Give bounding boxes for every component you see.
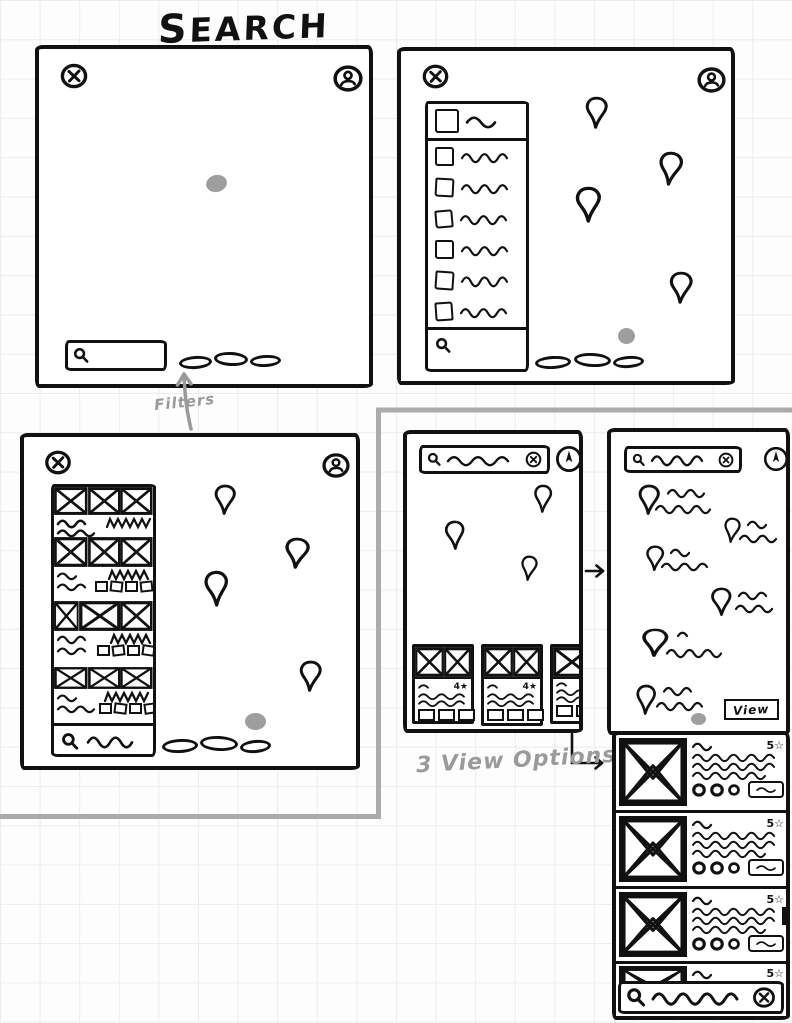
- profile-icon[interactable]: [696, 66, 727, 94]
- list-row[interactable]: 5☆: [616, 735, 786, 813]
- scribble-text: [756, 865, 776, 870]
- amenity-boxes: [95, 581, 153, 592]
- suggestion-row[interactable]: [428, 296, 526, 327]
- pin-label-scribble: [666, 648, 722, 657]
- image-placeholder-icon: [120, 601, 153, 631]
- search-input[interactable]: [624, 446, 742, 473]
- scribble-text: [57, 572, 83, 579]
- map-pin-icon[interactable]: [281, 536, 313, 571]
- result-text-row[interactable]: [54, 567, 153, 601]
- result-image-strip[interactable]: [54, 601, 153, 631]
- scribble-text: [460, 214, 510, 224]
- search-icon: [61, 732, 80, 751]
- pin-label-scribble: [747, 520, 769, 528]
- amenity-ring-icon: [692, 937, 706, 951]
- amenity-ring-icon: [710, 937, 724, 951]
- scribble-icons: [106, 518, 150, 528]
- search-icon: [73, 347, 90, 364]
- image-placeholder-icon: [120, 487, 153, 515]
- image-placeholder-icon: [54, 601, 79, 631]
- image-placeholder-icon: [79, 601, 121, 631]
- scribble-text: [57, 529, 97, 536]
- scribble-text: [57, 647, 93, 654]
- scribble-text: [756, 941, 776, 946]
- map-pin-icon[interactable]: [442, 519, 469, 552]
- results-panel: [51, 484, 156, 757]
- image-placeholder-icon: [619, 892, 687, 957]
- map-pin-icon[interactable]: [708, 586, 735, 618]
- search-icon: [427, 452, 442, 467]
- scribble-text: [461, 183, 515, 193]
- row-rating: 5☆: [766, 817, 784, 830]
- checkbox[interactable]: [435, 109, 459, 133]
- amenity-ring-icon: [692, 861, 706, 875]
- view-options-annotation: 3 View Options: [415, 743, 616, 778]
- search-input[interactable]: [65, 340, 167, 371]
- image-placeholder-icon: [120, 667, 153, 689]
- map-pin-icon[interactable]: [572, 185, 605, 225]
- image-placeholder-icon: [54, 667, 88, 689]
- amenity-ring-icon: [728, 862, 740, 874]
- scribble-text: [692, 916, 778, 924]
- image-placeholder-icon: [619, 816, 687, 882]
- checkbox[interactable]: [435, 147, 454, 166]
- pin-label-scribble: [739, 534, 781, 542]
- phone-card-view: 4★ 4★: [403, 430, 583, 733]
- phone-transition-arrow: [586, 566, 603, 577]
- scrollbar-thumb[interactable]: [782, 907, 786, 925]
- result-card[interactable]: 4★: [412, 644, 474, 724]
- filter-pill[interactable]: [250, 354, 282, 368]
- image-placeholder-icon: [120, 537, 153, 567]
- scribble-query: [87, 735, 139, 747]
- map-pin-icon[interactable]: [518, 554, 540, 582]
- scribble-action-button[interactable]: [748, 935, 784, 952]
- result-card[interactable]: [550, 644, 583, 724]
- result-image-strip[interactable]: [54, 667, 153, 689]
- result-image-strip[interactable]: [54, 487, 153, 515]
- search-input[interactable]: [618, 981, 784, 1014]
- scribble-text: [57, 635, 85, 643]
- map-pin-icon[interactable]: [634, 684, 658, 716]
- map-pin-icon[interactable]: [212, 484, 238, 516]
- filter-pill[interactable]: [214, 351, 249, 367]
- scribble-text: [461, 275, 511, 286]
- suggestion-row[interactable]: [428, 203, 526, 234]
- filter-pill[interactable]: [574, 352, 612, 368]
- scribble-text: [487, 693, 537, 699]
- amenity-boxes: [418, 709, 468, 721]
- profile-icon[interactable]: [332, 64, 364, 93]
- profile-icon[interactable]: [321, 452, 351, 479]
- scrollbar-thumb[interactable]: [786, 600, 790, 646]
- amenity-boxes: [556, 705, 583, 717]
- scribble-text: [418, 700, 468, 706]
- scribble-text: [692, 970, 718, 978]
- map-pin-icon[interactable]: [201, 569, 233, 609]
- scribble-rating: [108, 570, 150, 580]
- suggestion-row[interactable]: [428, 265, 526, 296]
- phone-list-view: 5☆ 5☆: [612, 731, 790, 1020]
- image-placeholder-icon: [88, 537, 121, 567]
- map-pin-icon[interactable]: [655, 150, 686, 188]
- suggestions-panel: [425, 101, 529, 372]
- filter-pill[interactable]: [162, 738, 199, 754]
- pin-label-scribble: [735, 604, 779, 612]
- image-placeholder-icon: [484, 647, 513, 677]
- search-input[interactable]: [419, 445, 550, 474]
- close-icon[interactable]: [59, 62, 89, 90]
- scribble-text: [418, 684, 436, 690]
- suggestion-row[interactable]: [428, 172, 526, 203]
- scribble-text: [756, 787, 776, 792]
- pin-label-scribble: [661, 562, 711, 570]
- card-carousel[interactable]: 4★ 4★: [412, 644, 583, 728]
- scribble-query: [447, 455, 515, 465]
- checkbox[interactable]: [434, 270, 454, 290]
- scribble-text: [692, 762, 778, 770]
- card-rating: 4★: [454, 682, 468, 692]
- current-location-dot: [691, 713, 706, 725]
- result-image-strip[interactable]: [54, 537, 153, 567]
- result-text-row[interactable]: [54, 515, 153, 537]
- suggestion-row[interactable]: [428, 234, 526, 265]
- scribble-text: [57, 705, 95, 712]
- pin-label-scribble: [663, 686, 691, 695]
- amenity-ring-icon: [728, 784, 740, 796]
- result-text-row[interactable]: [54, 631, 153, 667]
- scribble-text: [692, 907, 778, 915]
- scribble-text: [57, 694, 83, 701]
- current-location-dot: [204, 173, 228, 195]
- scribble-text: [692, 831, 778, 839]
- scribble-text: [692, 820, 718, 828]
- image-placeholder-icon: [553, 647, 583, 677]
- scribble-text: [487, 684, 505, 690]
- list-row[interactable]: 5☆: [616, 813, 786, 889]
- scribble-text: [692, 753, 778, 761]
- current-location-dot: [618, 328, 635, 344]
- checkbox[interactable]: [435, 178, 455, 198]
- checkbox[interactable]: [434, 209, 454, 229]
- scribble-text: [460, 307, 506, 317]
- suggestion-row[interactable]: [428, 141, 526, 172]
- filter-pill[interactable]: [200, 735, 239, 752]
- amenity-boxes: [99, 703, 156, 714]
- pin-label-scribble: [656, 701, 706, 710]
- search-input[interactable]: [54, 723, 153, 756]
- scribble-text: [556, 689, 583, 695]
- close-icon[interactable]: [421, 63, 450, 90]
- scribble-text: [692, 840, 778, 848]
- clear-icon[interactable]: [752, 986, 776, 1009]
- scribble-text: [57, 583, 91, 590]
- amenity-ring-icon: [692, 783, 706, 797]
- current-location-dot: [245, 713, 266, 730]
- scribble-text: [487, 700, 537, 706]
- scribble-text: [556, 696, 583, 702]
- screen-map-blank: [35, 45, 373, 388]
- filter-pill[interactable]: [535, 355, 572, 370]
- scribble-text: [461, 152, 509, 162]
- pin-label-scribble: [667, 488, 707, 497]
- image-placeholder-icon: [415, 647, 444, 677]
- result-card[interactable]: 4★: [481, 644, 543, 726]
- suggestion-row[interactable]: [428, 104, 526, 141]
- scribble-text: [692, 771, 772, 779]
- scribble-text: [418, 693, 468, 699]
- filter-pill[interactable]: [239, 739, 271, 755]
- screen-map-suggestions: [397, 47, 735, 385]
- locate-icon[interactable]: [555, 445, 583, 473]
- scribble-text: [692, 925, 772, 933]
- scribble-action-button[interactable]: [748, 781, 784, 798]
- image-placeholder-icon: [88, 667, 121, 689]
- amenity-ring-icon: [728, 938, 740, 950]
- filters-annotation: Filters: [153, 390, 216, 414]
- screen-map-results: [20, 433, 360, 770]
- view-button-label: View: [733, 702, 770, 718]
- pin-label-scribble: [677, 631, 695, 639]
- amenity-boxes: [97, 645, 155, 656]
- scribble-text: [692, 742, 718, 750]
- scribble-action-button[interactable]: [748, 859, 784, 876]
- filter-pill[interactable]: [179, 355, 213, 370]
- map-pin-icon[interactable]: [583, 96, 610, 130]
- wireframe-canvas: Search Filters: [0, 0, 792, 1023]
- locate-icon[interactable]: [763, 446, 789, 472]
- scribble-query: [652, 991, 740, 1004]
- search-icon: [626, 987, 647, 1008]
- image-placeholder-icon: [88, 487, 121, 515]
- checkbox[interactable]: [435, 240, 454, 259]
- clear-icon[interactable]: [718, 452, 734, 468]
- amenity-ring-icon: [710, 783, 724, 797]
- scribble-text: [461, 245, 513, 255]
- pin-label-scribble: [655, 504, 713, 513]
- map-pin-icon[interactable]: [532, 484, 554, 514]
- image-placeholder-icon: [619, 738, 687, 806]
- close-icon[interactable]: [44, 449, 72, 476]
- pin-label-scribble: [738, 591, 766, 599]
- scribble-text: [57, 519, 87, 527]
- row-rating: 5☆: [766, 739, 784, 752]
- search-icon: [632, 453, 646, 467]
- scribble-rating: [110, 634, 150, 644]
- scribble-rating: [104, 692, 150, 702]
- scribble-text: [556, 682, 574, 688]
- scribble-text: [466, 115, 508, 127]
- image-placeholder-icon: [54, 487, 88, 515]
- search-input[interactable]: [428, 327, 526, 361]
- card-rating: 4★: [523, 682, 537, 692]
- result-text-row[interactable]: [54, 689, 153, 723]
- phone-map-view: View: [607, 428, 790, 735]
- list-row[interactable]: 5☆: [616, 889, 786, 964]
- search-icon: [435, 337, 452, 354]
- row-rating: 5☆: [766, 893, 784, 906]
- map-pin-icon[interactable]: [297, 660, 324, 693]
- scribble-text: [692, 896, 718, 904]
- pin-label-scribble: [670, 548, 694, 556]
- row-rating: 5☆: [766, 967, 784, 980]
- image-placeholder-icon: [444, 647, 471, 677]
- checkbox[interactable]: [434, 301, 453, 321]
- scribble-text: [692, 849, 772, 857]
- clear-icon[interactable]: [525, 451, 542, 468]
- amenity-boxes: [487, 709, 537, 721]
- image-placeholder-icon: [54, 537, 88, 567]
- view-button[interactable]: View: [724, 699, 779, 720]
- filter-pill[interactable]: [613, 355, 645, 369]
- amenity-ring-icon: [710, 861, 724, 875]
- scribble-query: [651, 454, 703, 465]
- image-placeholder-icon: [513, 647, 540, 677]
- map-pin-icon[interactable]: [667, 271, 695, 305]
